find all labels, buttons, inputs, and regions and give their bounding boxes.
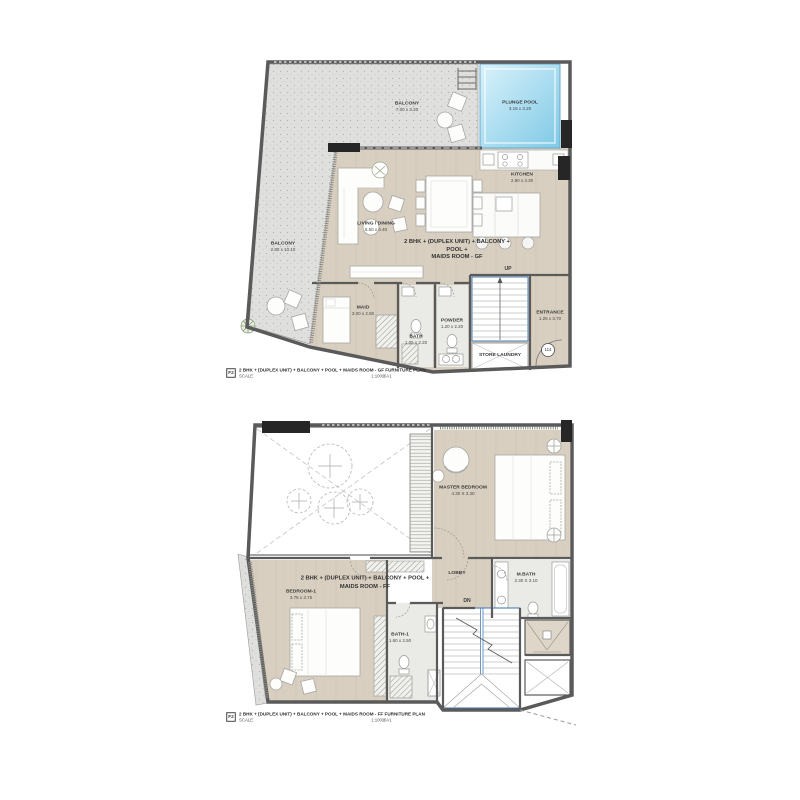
ff-lobby-floor [432, 558, 492, 608]
ff-bath1-label: BATH-1 1.60 x 2.50 [389, 632, 411, 644]
gf-balcony-left-label: BALCONY 2.80 x 10.10 [271, 241, 296, 253]
ff-stair-direction-label: DN [463, 598, 470, 603]
ff-stair [443, 608, 520, 708]
ff-mbath-label: M.BATH 2.30 X 3.10 [514, 572, 537, 584]
gf-stair [472, 277, 528, 341]
ff-master-bedroom-label: MASTER BEDROOM 4.30 X 3.30 [439, 485, 487, 497]
ff-shaft-small [428, 670, 440, 696]
ff-footer: F2 2 BHK + (DUPLEX UNIT) + BALCONY + POO… [226, 712, 396, 724]
floorplan-sheet: BALCONY 7.00 x 3.20 PLUNGE POOL 3.15 x 3… [0, 0, 800, 800]
ff-footer-scale-value: 1:100@A1 [371, 719, 391, 724]
gf-entrance-label: ENTRANCE 1.25 x 3.70 [536, 310, 563, 322]
gf-maid-label: MAID 3.00 x 2.80 [352, 305, 374, 317]
gf-column [558, 156, 570, 180]
gf-plan: BALCONY 7.00 x 3.20 PLUNGE POOL 3.15 x 3… [230, 56, 578, 390]
ff-wardrobe [366, 561, 424, 572]
gf-unit-title: 2 BHK + (DUPLEX UNIT) + BALCONY + POOL +… [403, 238, 512, 261]
gf-unit-number: 114 [544, 348, 551, 353]
ff-column [262, 421, 310, 433]
gf-footer-scale-value: 1:100@A1 [371, 375, 391, 380]
gf-column [561, 120, 572, 148]
ff-plan: MASTER BEDROOM 4.30 X 3.30 BEDROOM-1 3.7… [230, 418, 578, 728]
gf-living-dining-label: LIVING / DINING 5.50 x 4.40 [357, 221, 395, 233]
ff-sheet-icon: F2 [226, 712, 236, 722]
gf-powder-label: POWDER 1.20 x 2.20 [441, 318, 463, 330]
gf-store-laundry-label: STORE LAUNDRY [479, 353, 521, 359]
gf-bath-label: BATH 1.05 x 2.20 [405, 334, 427, 346]
ff-footer-scale-label: SCALE [239, 719, 253, 724]
ff-void-open-below [248, 427, 432, 555]
plant-icon [372, 162, 388, 178]
ff-bedroom1-label: BEDROOM-1 3.75 x 3.75 [286, 589, 316, 601]
gf-kitchen-label: KITCHEN 2.90 x 4.30 [511, 172, 533, 184]
ff-lobby-label: LOBBY [448, 571, 465, 577]
gf-footer-title: 2 BHK + (DUPLEX UNIT) + BALCONY + POOL +… [239, 368, 383, 374]
gf-footer-scale-label: SCALE [239, 375, 253, 380]
gf-balcony-top-label: BALCONY 7.00 x 3.20 [395, 101, 419, 113]
ff-master-bed [495, 455, 565, 540]
ff-catwalk [410, 434, 432, 552]
ff-footer-title: 2 BHK + (DUPLEX UNIT) + BALCONY + POOL +… [239, 712, 383, 718]
gf-column [328, 143, 360, 152]
ff-bed1 [290, 608, 360, 676]
gf-plunge-pool-label: PLUNGE POOL 3.15 x 3.20 [502, 100, 538, 112]
gf-stair-direction-label: UP [504, 266, 511, 271]
ff-shaft-shaded [525, 620, 570, 655]
ff-shaft-x [525, 660, 570, 695]
ff-unit-title: 2 BHK + (DUPLEX UNIT) + BALCONY + POOL +… [301, 575, 430, 591]
ff-wardrobe [374, 616, 386, 696]
gf-dining-set [416, 176, 482, 232]
gf-footer: F2 2 BHK + (DUPLEX UNIT) + BALCONY + POO… [226, 368, 396, 380]
gf-sheet-icon: F2 [226, 368, 236, 378]
ff-column [561, 420, 572, 442]
